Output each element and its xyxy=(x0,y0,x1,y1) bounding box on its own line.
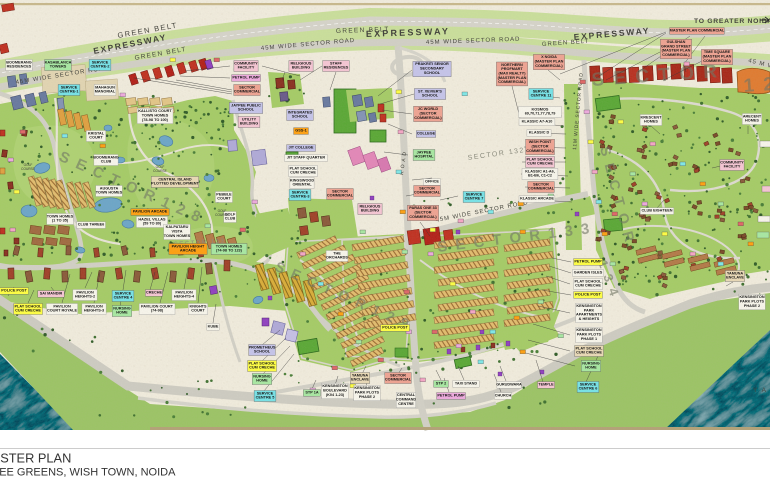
svg-text:MASTER PLAN: MASTER PLAN xyxy=(0,451,71,466)
svg-text:JAYPEE GREENS, WISH TOWN, NOID: JAYPEE GREENS, WISH TOWN, NOIDA xyxy=(0,467,176,479)
